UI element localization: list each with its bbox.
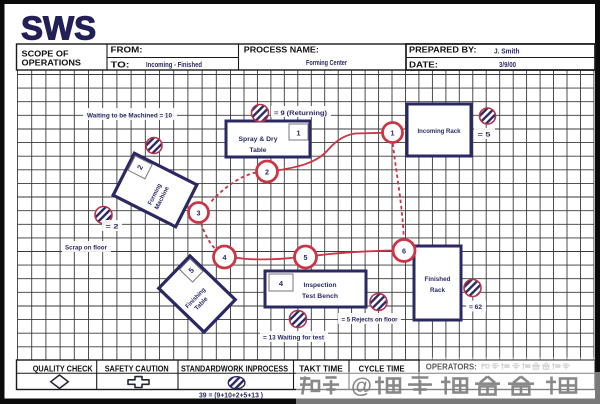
svg-text:PROCESS NAME:: PROCESS NAME: [244, 45, 319, 55]
svg-text:Test Bench: Test Bench [302, 293, 338, 300]
svg-text:@: @ [351, 374, 372, 398]
svg-text:= 5 Rejects on floor: = 5 Rejects on floor [342, 317, 399, 324]
svg-text:Inspection: Inspection [304, 282, 337, 289]
svg-text:39 = (9+10+2+5+13 ): 39 = (9+10+2+5+13 ) [199, 393, 263, 400]
svg-text:TO:: TO: [111, 60, 130, 70]
svg-text:J. Smith: J. Smith [494, 49, 520, 56]
svg-text:3/9/00: 3/9/00 [499, 62, 516, 69]
svg-text:Waiting to be Machined = 10: Waiting to be Machined = 10 [87, 113, 173, 120]
svg-text:= 13 Waiting for test: = 13 Waiting for test [263, 335, 324, 342]
svg-text:DATE:: DATE: [409, 60, 438, 70]
svg-text:SWS: SWS [21, 10, 96, 47]
svg-text:1: 1 [296, 129, 300, 138]
svg-text:PREPARED BY:: PREPARED BY: [409, 45, 477, 55]
svg-text:1: 1 [391, 129, 395, 138]
svg-text:= 62: = 62 [469, 304, 483, 311]
svg-text:= 2: = 2 [106, 224, 120, 231]
svg-text:Scrap on floor: Scrap on floor [65, 245, 108, 252]
svg-text:Rack: Rack [430, 287, 445, 294]
svg-text:Incoming - Finished: Incoming - Finished [146, 60, 202, 69]
svg-text:Finished: Finished [425, 276, 451, 283]
svg-text:5: 5 [304, 253, 308, 262]
svg-text:Spray & Dry: Spray & Dry [239, 136, 278, 143]
svg-text:= 9 (Returning): = 9 (Returning) [274, 110, 327, 117]
svg-text:= 5: = 5 [478, 132, 492, 139]
svg-text:SAFETY CAUTION: SAFETY CAUTION [105, 365, 169, 374]
svg-text:Table: Table [250, 147, 267, 154]
svg-text:2: 2 [265, 168, 269, 177]
svg-text:4: 4 [223, 253, 227, 262]
svg-text:3: 3 [197, 209, 201, 218]
svg-text:Incoming Rack: Incoming Rack [418, 128, 461, 135]
svg-text:STANDARDWORK INPROCESS: STANDARDWORK INPROCESS [181, 365, 288, 374]
svg-text:FROM:: FROM: [111, 45, 143, 55]
svg-text:TAKT TIME: TAKT TIME [299, 364, 343, 373]
svg-text:6: 6 [402, 247, 406, 256]
svg-text:Forming Center: Forming Center [306, 58, 347, 67]
svg-text:OPERATIONS: OPERATIONS [22, 58, 82, 68]
svg-text:QUALITY CHECK: QUALITY CHECK [33, 365, 93, 374]
